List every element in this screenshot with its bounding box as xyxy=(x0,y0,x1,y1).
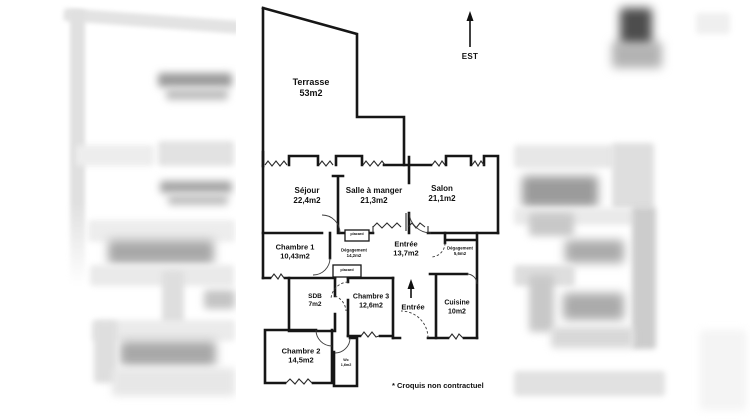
entrance-label: Entrée xyxy=(401,302,424,311)
room-label-terrasse: Terrasse53m2 xyxy=(293,77,330,100)
room-label-sdb: SDB7m2 xyxy=(308,293,322,309)
room-label-salle-a-manger: Salle à manger21,3m2 xyxy=(346,186,402,206)
room-label-salon: Salon21,1m2 xyxy=(428,184,455,204)
floor-plan-walls xyxy=(0,0,750,420)
room-label-entree-hall: Entrée13,7m2 xyxy=(393,240,418,259)
room-label-degagement-petit: Dégagement5,6m2 xyxy=(447,247,473,258)
room-label-cuisine: Cuisine10m2 xyxy=(444,299,469,317)
listing-page: Terrasse53m2 EST Séjour22,4m2 Salle à ma… xyxy=(0,0,750,420)
closet-label-top: placard xyxy=(350,233,363,238)
entrance-arrow-icon xyxy=(408,279,415,298)
compass-label: EST xyxy=(462,52,478,62)
east-compass-arrow-icon xyxy=(467,11,474,47)
room-label-chambre2: Chambre 214,5m2 xyxy=(282,347,321,366)
terrace-outline xyxy=(263,8,404,166)
room-label-chambre1: Chambre 110,43m2 xyxy=(276,243,315,262)
room-label-degagement-grand: Dégagement14,2m2 xyxy=(341,249,367,260)
closet-label-bottom: placard xyxy=(340,269,353,274)
disclaimer-note: * Croquis non contractuel xyxy=(392,381,484,390)
room-label-sejour: Séjour22,4m2 xyxy=(293,186,320,206)
room-label-chambre3: Chambre 312,6m2 xyxy=(353,293,389,311)
room-label-wc: Wc1,6m2 xyxy=(341,358,352,367)
